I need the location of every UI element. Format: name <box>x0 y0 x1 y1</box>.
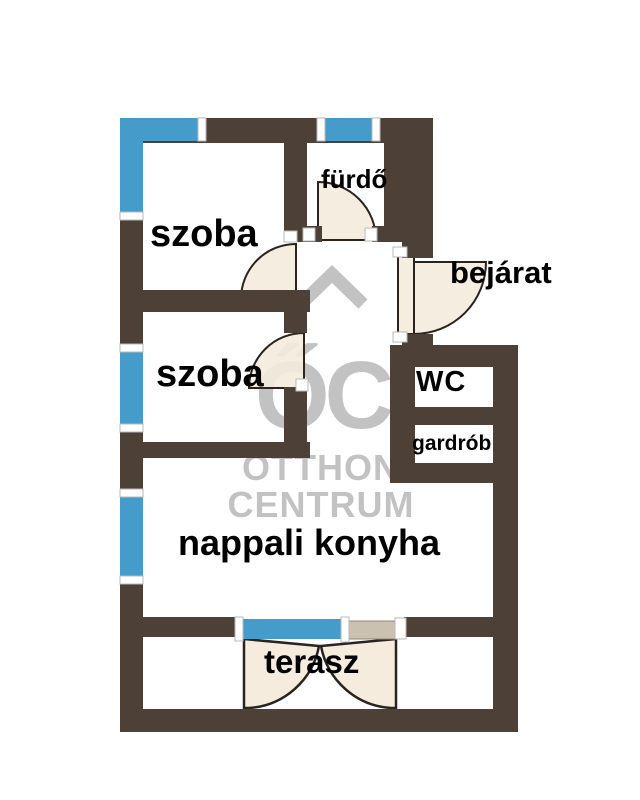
window-cap <box>372 118 380 141</box>
window-cap <box>120 576 143 584</box>
wall-room1-bottom <box>120 290 310 312</box>
wall-right-main <box>493 345 518 732</box>
door-jamb <box>284 231 297 242</box>
bathroom-top-window <box>325 118 372 141</box>
wall-room2-right-upper <box>284 312 307 333</box>
terrace-door-panel <box>349 621 395 639</box>
door-jamb <box>303 228 315 241</box>
wall-terrace-top-right <box>404 617 493 637</box>
window-cap <box>120 344 143 352</box>
door-jamb <box>393 332 407 342</box>
wall-gardrob-bottom <box>390 463 493 483</box>
room-label-wc: WC <box>416 368 466 397</box>
wall-right-upper-block <box>384 143 433 226</box>
entrance-door-leaf <box>398 256 414 334</box>
floorplan: ŐC OTTHON CENTRUM <box>0 0 640 800</box>
livingroom-left-window <box>120 497 143 576</box>
window-cap <box>395 618 406 639</box>
wall-left <box>120 143 143 732</box>
door-jamb <box>296 379 308 391</box>
window-cap <box>120 489 143 497</box>
floorplan-drawing: ŐC OTTHON CENTRUM <box>0 0 640 800</box>
room-label-szoba-top: szoba <box>150 215 258 253</box>
room-label-nappali-konyha: nappali konyha <box>178 525 440 561</box>
watermark-roof-icon <box>301 274 363 304</box>
room1-top-window <box>126 118 198 141</box>
door-jamb <box>365 228 377 241</box>
wall-wc-gardrob-divider <box>390 407 493 425</box>
window-cap <box>198 118 206 141</box>
room-label-bejarat: bejárat <box>450 257 552 288</box>
room-label-gardrob: gardrób <box>412 433 491 454</box>
window-cap <box>317 118 325 141</box>
wall-bathroom-bottom-right <box>372 226 433 242</box>
window-cap <box>120 424 143 432</box>
room2-left-window <box>120 352 143 424</box>
wall-bottom <box>120 709 518 732</box>
window-cap <box>120 212 143 220</box>
window-cap <box>235 617 243 641</box>
terrace-window <box>243 619 341 639</box>
wall-room2-bottom <box>120 442 310 458</box>
wall-terrace-top-left <box>120 617 236 637</box>
window-cap <box>341 617 349 642</box>
room-label-terasz: terasz <box>264 645 359 678</box>
watermark-name-line2: CENTRUM <box>228 484 415 525</box>
door-jamb <box>393 247 407 257</box>
wall-room1-right <box>284 143 307 242</box>
room-label-furdo: fürdő <box>321 166 387 192</box>
room-label-szoba-middle: szoba <box>156 355 264 393</box>
